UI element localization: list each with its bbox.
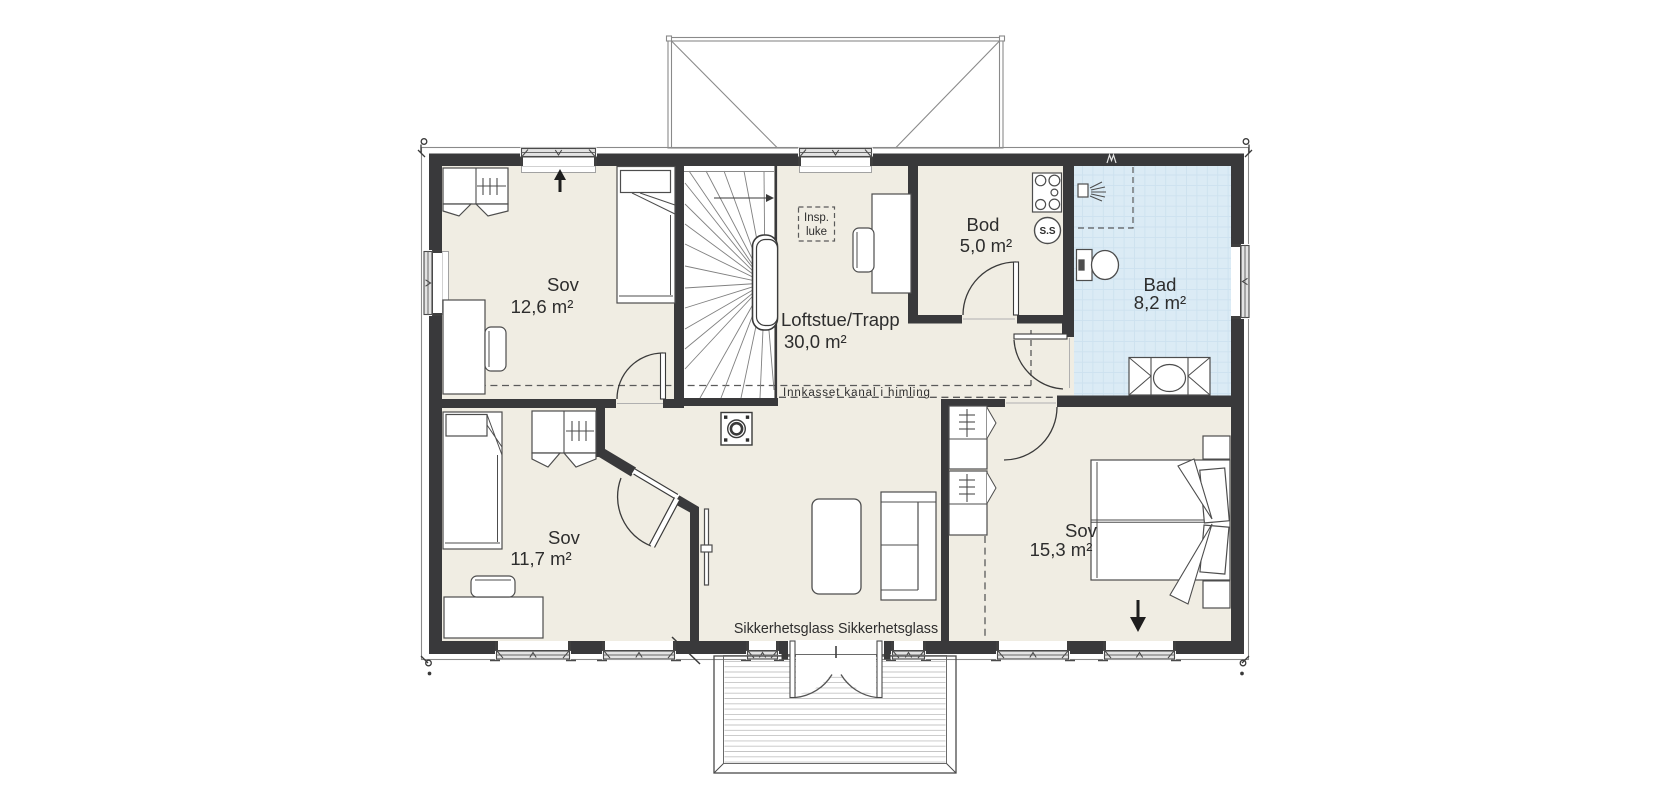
svg-text:luke: luke [806,226,827,238]
svg-text:15,3 m²: 15,3 m² [1030,539,1093,560]
svg-text:S.S: S.S [1039,226,1055,237]
svg-text:8,2 m²: 8,2 m² [1134,292,1186,313]
svg-text:Innkasset kanal i himling: Innkasset kanal i himling [783,387,931,399]
svg-text:12,6 m²: 12,6 m² [511,296,574,317]
svg-text:11,7 m²: 11,7 m² [510,548,571,569]
svg-text:Sov: Sov [547,274,580,295]
svg-text:Sov: Sov [1065,520,1098,541]
svg-text:Insp.: Insp. [804,212,829,224]
svg-text:Bod: Bod [967,214,1000,235]
svg-text:Sikkerhetsglass Sikkerhetsglas: Sikkerhetsglass Sikkerhetsglass [734,621,938,637]
svg-text:30,0 m²: 30,0 m² [784,331,847,352]
svg-text:5,0 m²: 5,0 m² [960,235,1012,256]
svg-text:Loftstue/Trapp: Loftstue/Trapp [781,309,900,330]
svg-text:Sov: Sov [548,527,581,548]
